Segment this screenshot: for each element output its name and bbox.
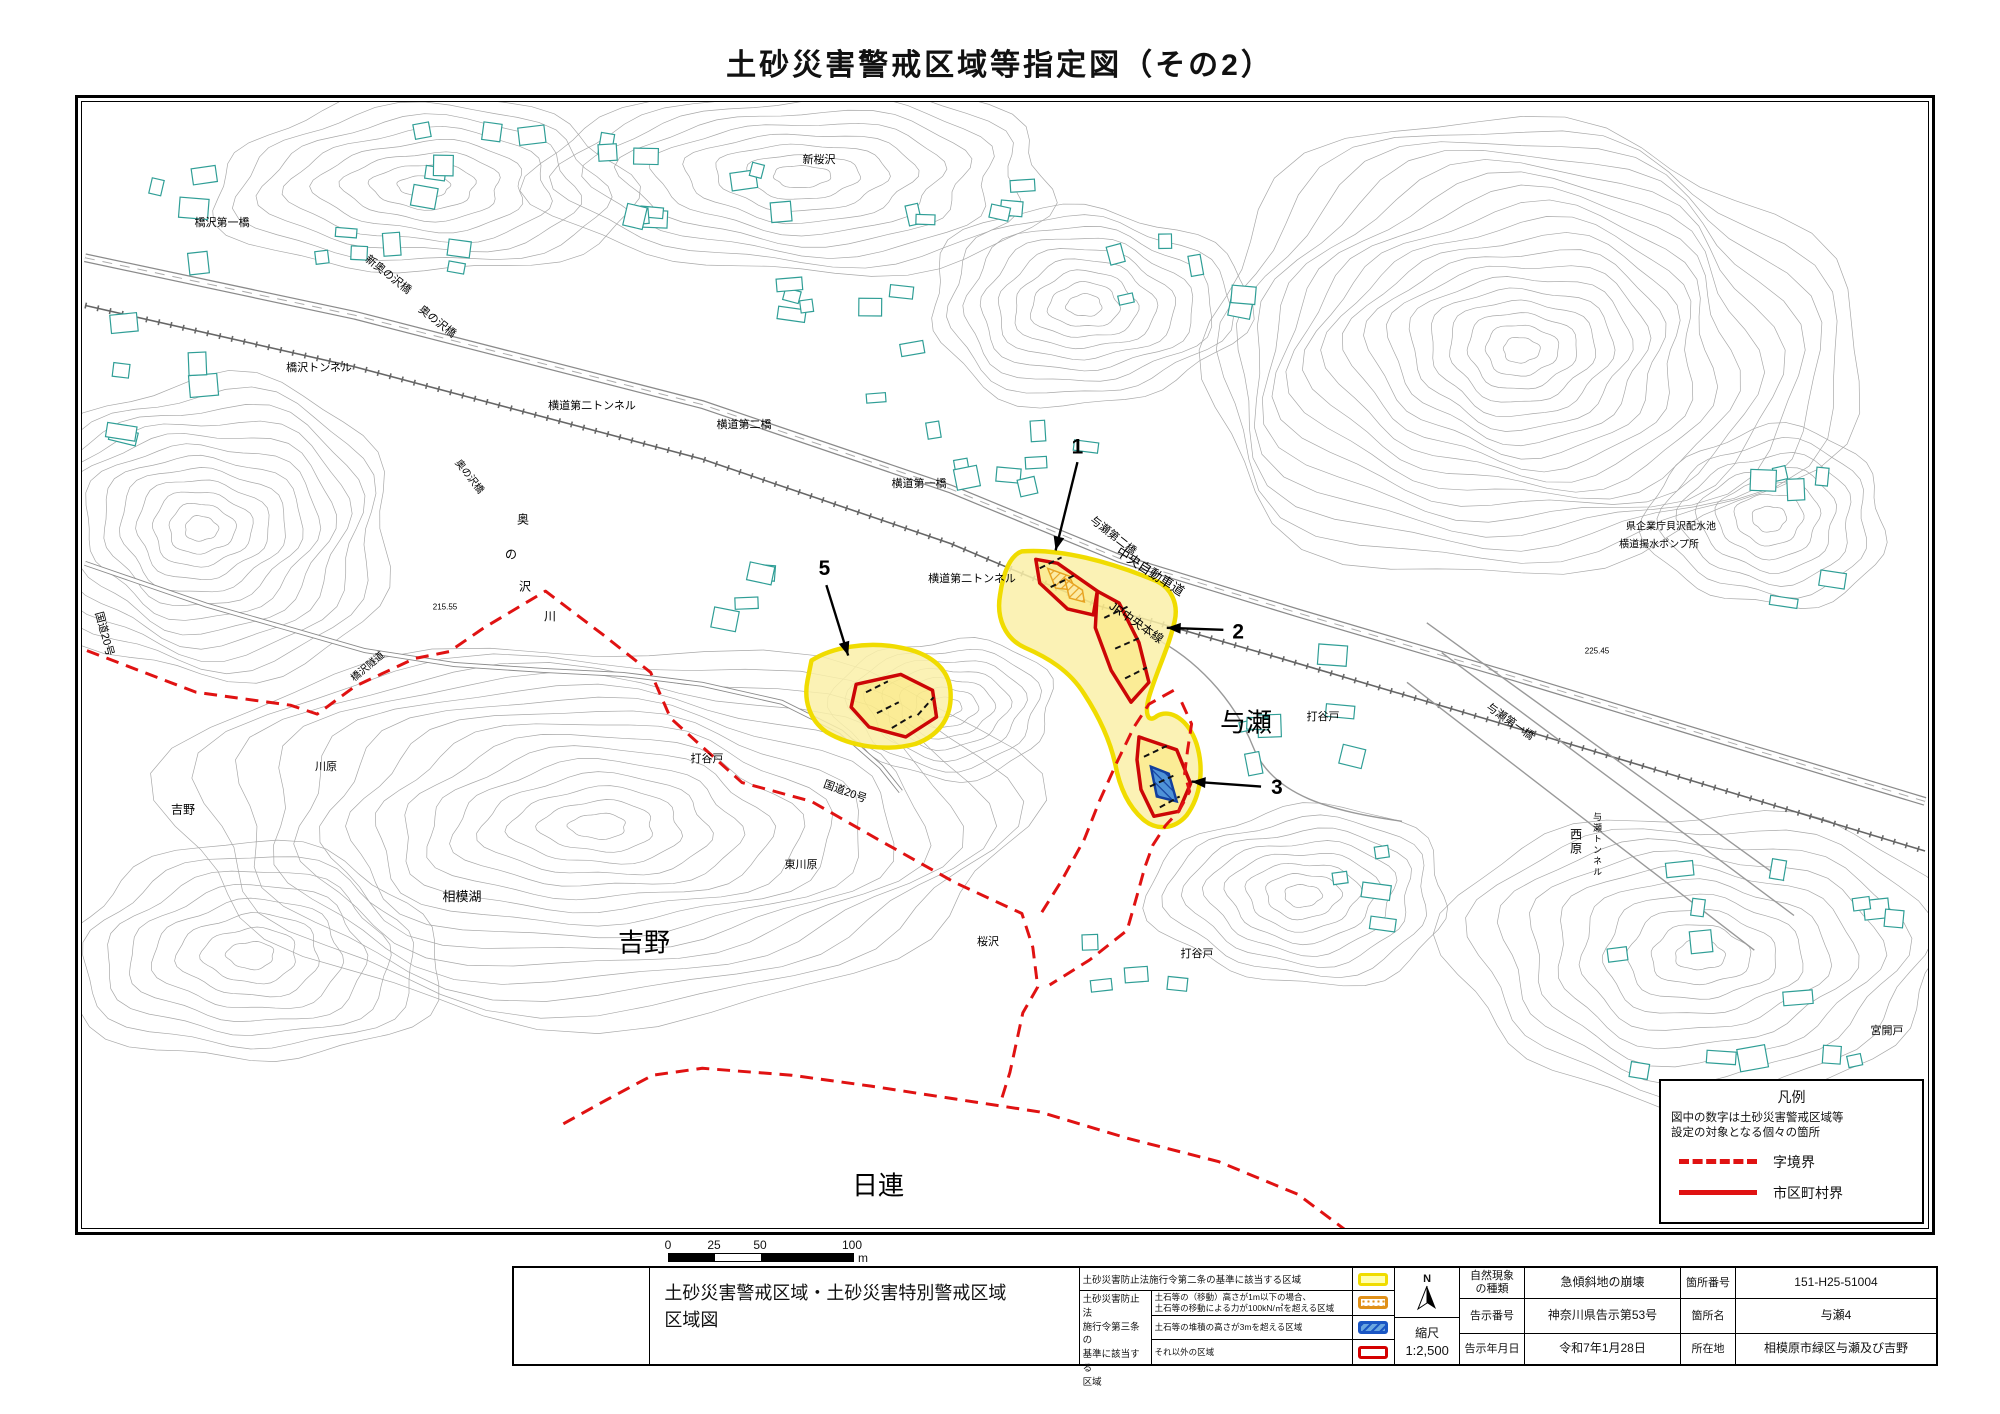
map-legend-title: 凡例 xyxy=(1671,1087,1912,1107)
scale-tick-100: 100 xyxy=(842,1238,862,1252)
location-header: 所在地 xyxy=(1681,1334,1736,1364)
notice-number-value: 神奈川県告示第53号 xyxy=(1525,1299,1681,1333)
site-name-header: 箇所名 xyxy=(1681,1299,1736,1333)
phenomenon-type-value: 急傾斜地の崩壊 xyxy=(1525,1268,1681,1298)
scale-segment-1 xyxy=(669,1254,715,1261)
location-value: 相模原市緑区与瀬及び吉野 xyxy=(1736,1334,1936,1364)
legend-article2-desc: 土砂災害防止法施行令第二条の基準に該当する区域 xyxy=(1080,1268,1353,1290)
site-name-value: 与瀬4 xyxy=(1736,1299,1936,1333)
scale-tick-25: 25 xyxy=(707,1238,720,1252)
notice-date-header: 告示年月日 xyxy=(1460,1334,1525,1364)
blue-zone-swatch xyxy=(1358,1321,1388,1334)
zone-number-label: 5 xyxy=(819,557,831,580)
legend-red-desc: それ以外の区域 xyxy=(1152,1340,1353,1364)
scale-segment-2 xyxy=(715,1254,761,1261)
map-sheet-title: 土砂災害警戒区域・土砂災害特別警戒区域 区域図 xyxy=(650,1268,1079,1364)
table-row: 告示番号 神奈川県告示第53号 箇所名 与瀬4 xyxy=(1460,1299,1936,1334)
municipal-boundary-label: 市区町村界 xyxy=(1773,1183,1843,1203)
red-zone-swatch xyxy=(1358,1346,1388,1359)
aza-boundary-label: 字境界 xyxy=(1773,1152,1815,1172)
notice-info-table: 自然現象 の種類 急傾斜地の崩壊 箇所番号 151-H25-51004 告示番号… xyxy=(1460,1268,1936,1364)
scale-segment-3 xyxy=(761,1254,853,1261)
scale-label: 縮尺 xyxy=(1415,1324,1439,1341)
dashed-boundary-sample xyxy=(1679,1159,1757,1164)
scale-tick-50: 50 xyxy=(753,1238,766,1252)
table-row: 告示年月日 令和7年1月28日 所在地 相模原市緑区与瀬及び吉野 xyxy=(1460,1334,1936,1364)
scale-value: 1:2,500 xyxy=(1405,1343,1448,1358)
title-block-empty-cell xyxy=(514,1268,650,1364)
zone-number-label: 2 xyxy=(1232,620,1244,643)
notice-number-header: 告示番号 xyxy=(1460,1299,1525,1333)
aza-boundary-south xyxy=(563,1068,1345,1228)
compass-scale-cell: N 縮尺 1:2,500 xyxy=(1395,1268,1460,1364)
solid-boundary-sample xyxy=(1679,1190,1757,1195)
zone-number-label: 1 xyxy=(1072,436,1084,459)
legend-article3-group-label: 土砂災害防止法 施行令第三条の 基準に該当する 区域 xyxy=(1080,1291,1152,1364)
north-label: N xyxy=(1423,1274,1431,1285)
legend-blue-desc: 土石等の堆積の高さが3mを超える区域 xyxy=(1152,1316,1353,1340)
yellow-zone-swatch xyxy=(1358,1273,1388,1286)
north-arrow-icon xyxy=(1416,1285,1438,1311)
zone-number-label: 3 xyxy=(1271,776,1283,799)
notice-date-value: 令和7年1月28日 xyxy=(1525,1334,1681,1364)
page-title: 土砂災害警戒区域等指定図（その2） xyxy=(0,40,2000,84)
map-legend-box: 凡例 図中の数字は土砂災害警戒区域等 設定の対象となる個々の箇所 字境界 市区町… xyxy=(1659,1079,1924,1224)
route20-inner xyxy=(85,563,901,791)
scale-unit: m xyxy=(858,1251,868,1265)
title-block: 土砂災害警戒区域・土砂災害特別警戒区域 区域図 土砂災害防止法施行令第二条の基準… xyxy=(512,1266,1938,1366)
expressway-chuo-inner xyxy=(85,258,1925,802)
map-svg: 1235 xyxy=(82,102,1928,1228)
scale-bar-segments xyxy=(668,1253,854,1262)
page: { "page_title": "土砂災害警戒区域等指定図（その2）", "ma… xyxy=(0,0,2000,1414)
local-road-1 xyxy=(1427,623,1784,881)
site-number-value: 151-H25-51004 xyxy=(1736,1268,1936,1298)
scale-bar: 0 25 50 100 m xyxy=(668,1238,898,1266)
scale-tick-0: 0 xyxy=(665,1238,672,1252)
phenomenon-type-header: 自然現象 の種類 xyxy=(1460,1268,1525,1298)
map-canvas: 1235 橋沢第一橋新奥の沢橋奥の沢橋橋沢トンネル横道第二トンネル横道第二橋横道… xyxy=(81,101,1929,1229)
zone-legend: 土砂災害防止法施行令第二条の基準に該当する区域 土砂災害防止法 施行令第三条の … xyxy=(1080,1268,1396,1364)
route20-outer xyxy=(85,563,901,791)
table-row: 自然現象 の種類 急傾斜地の崩壊 箇所番号 151-H25-51004 xyxy=(1460,1268,1936,1299)
map-frame: 1235 橋沢第一橋新奥の沢橋奥の沢橋橋沢トンネル横道第二トンネル横道第二橋横道… xyxy=(75,95,1935,1235)
hazard-zones-group xyxy=(806,551,1200,827)
orange-zone-swatch xyxy=(1358,1296,1388,1309)
map-legend-note: 図中の数字は土砂災害警戒区域等 設定の対象となる個々の箇所 xyxy=(1671,1111,1912,1141)
site-number-header: 箇所番号 xyxy=(1681,1268,1736,1298)
local-road-2 xyxy=(1442,653,1794,916)
legend-orange-desc: 土石等の（移動）高さが1m以下の場合、 土石等の移動による力が100kN/㎡を超… xyxy=(1152,1291,1353,1315)
